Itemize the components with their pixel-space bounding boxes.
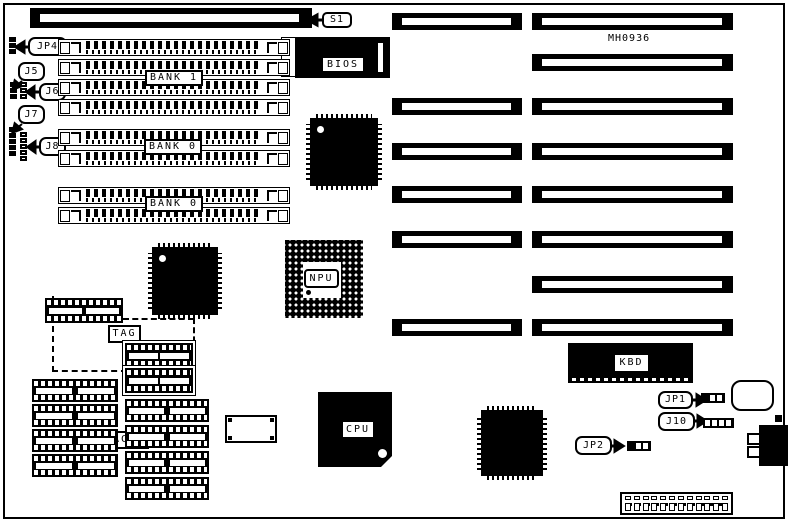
kbd-pins (572, 378, 689, 381)
npu-pin1-dot (306, 290, 311, 295)
jp2-jumper (627, 441, 651, 451)
expansion-slot-left-3 (392, 143, 522, 160)
cache-socket-7-pins-top (127, 453, 207, 458)
callout-s1: S1 (322, 12, 352, 28)
cache-socket-7 (125, 451, 209, 474)
u1-chip-pins-bottom (47, 316, 121, 321)
keyboard-connector-port-2 (747, 446, 761, 458)
chipset-chip-2 (152, 247, 218, 315)
cache-socket-6 (125, 425, 209, 448)
chipset-chip-1-pin1-dot (317, 126, 324, 133)
cache-socket-4-window-right (78, 463, 114, 469)
cache-socket-6-pins-bottom (127, 441, 207, 446)
chipset-chip-3-pins-right (543, 416, 547, 470)
kbd-label-text: KBD (619, 358, 643, 368)
simm-socket-4 (58, 99, 290, 116)
expansion-slot-right-1-stripe (542, 18, 722, 25)
u3-chip-window-left (129, 378, 158, 384)
u3-chip (125, 368, 193, 393)
cache-socket-6-pins-top (127, 427, 207, 432)
power-connector-tab (696, 496, 702, 500)
chipset-chip-1-pins-right (378, 124, 382, 180)
simm-socket-2-latch-right (267, 62, 277, 73)
chipset-chip-3-pins-bottom (487, 476, 537, 480)
power-connector-tab (634, 496, 640, 500)
expansion-slot-right-2-stripe (542, 59, 722, 66)
bank0-upper-label-text: BANK 0 (149, 142, 197, 152)
cache-socket-7-window-left (129, 460, 164, 466)
callout-j5: J5 (18, 62, 45, 81)
chipset-chip-2-pins-left (148, 253, 152, 309)
cache-socket-5-window-left (129, 408, 164, 414)
cache-socket-8-pins-bottom (127, 493, 207, 498)
bios-chip-stripe (378, 43, 383, 72)
npu-label: NPU (304, 269, 339, 288)
tag-socket-outline-bottom (52, 370, 127, 372)
simm-socket-7-latch-right (267, 190, 277, 201)
power-connector-pin (634, 503, 640, 511)
simm-socket-5-latch-left (71, 132, 81, 143)
power-connector-pins (625, 503, 728, 511)
power-connector-pin (704, 503, 710, 511)
simm-socket-5-latch-right (267, 132, 277, 143)
simm-socket-1 (58, 39, 290, 56)
simm-socket-7-tab-right (278, 190, 288, 202)
j8-pin-header-pin-2 (20, 138, 27, 143)
cache-socket-1-window-right (78, 388, 114, 394)
cpu-label-text: CPU (346, 425, 370, 435)
simm-socket-8-contacts-lower (86, 218, 258, 222)
u3-chip-window-right (160, 378, 189, 384)
motherboard-diagram: BIOS MH0936 NPU CPU KBD TAG U1 U2 U3 CAC… (0, 0, 791, 527)
power-connector-tab (722, 496, 728, 500)
j8-pin-header-pin-4 (20, 150, 27, 155)
tag-label: TAG (108, 325, 141, 343)
cpu-pin1-dot (378, 449, 387, 458)
simm-socket-1-tab-left (60, 42, 70, 54)
tag-socket-outline-right (193, 318, 195, 370)
expansion-slot-right-7-stripe (542, 281, 722, 288)
s1-connector (30, 8, 312, 28)
cache-socket-5-window-right (170, 408, 205, 414)
cache-socket-2-pins-bottom (34, 420, 116, 425)
cache-socket-1-pins-bottom (34, 395, 116, 400)
cache-socket-3-window-left (36, 438, 72, 444)
jp2-jumper-pin-3 (643, 443, 648, 449)
expansion-slot-right-5 (532, 186, 733, 203)
j7-pin-header-pin-1 (9, 127, 16, 132)
expansion-slot-right-8 (532, 319, 733, 336)
simm-socket-4-tab-left (60, 102, 70, 114)
chipset-chip-2-pins-right (218, 253, 222, 309)
expansion-slot-left-6-stripe (402, 324, 511, 331)
expansion-slot-right-6 (532, 231, 733, 248)
kbd-label: KBD (614, 354, 649, 372)
u3-chip-pins-top (127, 370, 191, 375)
callout-j7-text: J7 (24, 110, 38, 120)
callout-jp1: JP1 (658, 391, 693, 409)
expansion-slot-right-6-stripe (542, 236, 722, 243)
cache-socket-1-window-left (36, 388, 72, 394)
cache-socket-8-pins-top (127, 479, 207, 484)
jp4-jumper-block-pin-2 (9, 43, 16, 48)
u1-chip (45, 298, 123, 323)
callout-s1-text: S1 (330, 15, 344, 25)
j8-pin-header-pin-1 (20, 132, 27, 137)
tag-label-text: TAG (112, 329, 136, 339)
power-connector-tab (687, 496, 693, 500)
expansion-slot-left-2-stripe (402, 103, 511, 110)
cache-socket-5-pins-top (127, 401, 207, 406)
j6-jumper-block-pin-2 (20, 88, 27, 93)
bios-label: BIOS (321, 56, 365, 73)
simm-socket-6-latch-left (71, 153, 81, 164)
expansion-slot-right-4 (532, 143, 733, 160)
j7-pin-header-pin-5 (9, 151, 16, 156)
simm-socket-3-latch-right (267, 82, 277, 93)
j6-jumper-block-pin-1 (20, 82, 27, 87)
u2-chip-window-left (129, 353, 158, 359)
power-connector-tab (660, 496, 666, 500)
simm-socket-8-tab-right (278, 210, 288, 222)
expansion-slot-right-3-stripe (542, 103, 722, 110)
power-connector-pin (651, 503, 657, 511)
j8-pin-header-pin-3 (20, 144, 27, 149)
j7-pin-header-pin-2 (9, 133, 16, 138)
cache-socket-2-window-right (78, 413, 114, 419)
simm-socket-1-latch-left (71, 42, 81, 53)
jp4-jumper-block-pin-3 (9, 49, 16, 54)
callout-j10-text: J10 (666, 417, 687, 427)
expansion-slot-right-2 (532, 54, 733, 71)
jp2-jumper-pin-2 (636, 443, 641, 449)
j10-jumper-pin-4 (726, 420, 731, 426)
power-connector-pin (713, 503, 719, 511)
power-connector-tab (669, 496, 675, 500)
simm-socket-2-contacts-upper (86, 61, 258, 69)
simm-socket-6-latch-right (267, 153, 277, 164)
chipset-chip-2-pins-bottom (158, 315, 212, 319)
chipset-chip-1-pins-bottom (316, 186, 372, 190)
simm-socket-5-tab-right (278, 132, 288, 144)
npu-label-text: NPU (309, 274, 333, 284)
expansion-slot-left-1 (392, 13, 522, 30)
chipset-chip-1 (310, 118, 378, 186)
power-connector-tab (678, 496, 684, 500)
cache-socket-2-window-left (36, 413, 72, 419)
simm-socket-4-latch-right (267, 102, 277, 113)
power-connector-pin (687, 503, 693, 511)
cache-socket-8-window-right (170, 486, 205, 492)
expansion-slot-left-4-stripe (402, 191, 511, 198)
simm-socket-1-contacts-lower (86, 50, 258, 54)
j5-jumper-block-pin-1 (10, 82, 17, 87)
simm-socket-3-latch-left (71, 82, 81, 93)
expansion-slot-left-3-stripe (402, 148, 511, 155)
expansion-slot-right-1 (532, 13, 733, 30)
j8-pin-header-pin-5 (20, 156, 27, 161)
jp1-jumper (701, 393, 725, 403)
u2-chip-pins-bottom (127, 361, 191, 366)
keyboard-connector (759, 425, 788, 466)
power-connector-pin (643, 503, 649, 511)
cache-socket-2-pins-top (34, 406, 116, 411)
cache-socket-7-window-right (170, 460, 205, 466)
power-connector-pin (678, 503, 684, 511)
u1-chip-pins-top (47, 300, 121, 305)
callout-j10: J10 (658, 412, 695, 431)
simm-socket-8-latch-right (267, 210, 277, 221)
cache-socket-8-window-left (129, 486, 164, 492)
u2-chip (125, 343, 193, 368)
keyboard-connector-pad (775, 415, 782, 422)
j7-pin-header-pin-3 (9, 139, 16, 144)
simm-socket-4-contacts-lower (86, 110, 258, 114)
power-connector-pin (669, 503, 675, 511)
callout-jp2: JP2 (575, 436, 612, 455)
power-connector-tab (625, 496, 631, 500)
cache-socket-1-pins-top (34, 381, 116, 386)
callout-j5-text: J5 (24, 67, 38, 77)
cache-socket-8 (125, 477, 209, 500)
j10-jumper-pin-1 (705, 420, 710, 426)
battery-outline (731, 380, 774, 411)
cache-socket-4-pins-bottom (34, 470, 116, 475)
simm-socket-4-contacts-upper (86, 101, 258, 109)
j7-pin-header-pin-4 (9, 145, 16, 150)
empty-socket (225, 415, 277, 443)
cache-socket-6-window-right (170, 434, 205, 440)
j5-jumper-block-pin-2 (10, 88, 17, 93)
cache-socket-3 (32, 429, 118, 452)
bank0-lower-label-text: BANK 0 (150, 199, 198, 209)
chipset-chip-3 (481, 410, 543, 476)
chipset-chip-1-pins-left (306, 124, 310, 180)
u2-chip-pins-top (127, 345, 191, 350)
cache-socket-3-pins-top (34, 431, 116, 436)
callout-jp2-text: JP2 (583, 441, 604, 451)
expansion-slot-left-5 (392, 231, 522, 248)
simm-socket-3-tab-right (278, 82, 288, 94)
simm-socket-5-tab-left (60, 132, 70, 144)
cpu-label: CPU (342, 421, 374, 438)
power-connector-tab (704, 496, 710, 500)
j10-jumper-pin-2 (712, 420, 717, 426)
cache-socket-7-pins-bottom (127, 467, 207, 472)
cache-socket-5-pins-bottom (127, 415, 207, 420)
simm-socket-6-contacts-lower (86, 161, 258, 165)
chipset-chip-3-pins-left (477, 416, 481, 470)
power-connector-tab (643, 496, 649, 500)
bios-label-text: BIOS (327, 60, 359, 70)
callout-j7: J7 (18, 105, 45, 124)
simm-socket-1-tab-right (278, 42, 288, 54)
simm-socket-2-tab-left (60, 62, 70, 74)
u1-chip-window-left (49, 308, 82, 314)
u1-chip-window-right (86, 308, 119, 314)
simm-socket-4-latch-left (71, 102, 81, 113)
power-connector-pin (696, 503, 702, 511)
chipset-chip-2-pins-top (158, 243, 212, 247)
cache-socket-3-window-right (78, 438, 114, 444)
expansion-slot-right-7 (532, 276, 733, 293)
simm-socket-8-tab-left (60, 210, 70, 222)
j10-jumper-pin-3 (719, 420, 724, 426)
expansion-slot-left-5-stripe (402, 236, 511, 243)
cache-socket-1 (32, 379, 118, 402)
chipset-chip-3-pins-top (487, 406, 537, 410)
s1-connector-stripe (40, 14, 299, 22)
part-number: MH0936 (608, 34, 650, 44)
expansion-slot-left-2 (392, 98, 522, 115)
chipset-chip-1-pins-top (316, 114, 372, 118)
simm-socket-7-latch-left (71, 190, 81, 201)
expansion-slot-right-4-stripe (542, 148, 722, 155)
cache-socket-5 (125, 399, 209, 422)
bank1-label-text: BANK 1 (150, 73, 198, 83)
cache-socket-4-window-left (36, 463, 72, 469)
simm-socket-2-tab-right (278, 62, 288, 74)
simm-socket-4-tab-right (278, 102, 288, 114)
expansion-slot-left-6 (392, 319, 522, 336)
power-connector-tabs (625, 496, 728, 500)
jp1-jumper-pin-2 (710, 395, 715, 401)
power-connector-tab (713, 496, 719, 500)
power-connector-pin (660, 503, 666, 511)
bank0-upper-label: BANK 0 (144, 139, 202, 155)
simm-socket-7-tab-left (60, 190, 70, 202)
bank1-label: BANK 1 (145, 70, 203, 86)
bank0-lower-label: BANK 0 (145, 196, 203, 212)
simm-socket-5-contacts-upper (86, 131, 258, 139)
expansion-slot-right-5-stripe (542, 191, 722, 198)
simm-socket-6-tab-right (278, 153, 288, 165)
j5-jumper-block-pin-3 (10, 94, 17, 99)
callout-jp1-text: JP1 (665, 395, 686, 405)
chipset-chip-2-pin1-dot (159, 255, 166, 262)
power-connector-pin (722, 503, 728, 511)
cache-socket-2 (32, 404, 118, 427)
simm-socket-1-contacts-upper (86, 41, 258, 49)
expansion-slot-right-8-stripe (542, 324, 722, 331)
power-connector-pin (625, 503, 631, 511)
simm-socket-3-contacts-lower (86, 90, 258, 94)
simm-socket-6-tab-left (60, 153, 70, 165)
j6-jumper-block-pin-3 (20, 94, 27, 99)
cache-socket-3-pins-bottom (34, 445, 116, 450)
keyboard-connector-port-1 (747, 433, 761, 445)
simm-socket-1-latch-right (267, 42, 277, 53)
u3-chip-pins-bottom (127, 386, 191, 391)
simm-socket-3-tab-left (60, 82, 70, 94)
expansion-slot-right-3 (532, 98, 733, 115)
callout-jp4-text: JP4 (37, 42, 58, 52)
simm-socket-8-latch-left (71, 210, 81, 221)
simm-socket-2-latch-left (71, 62, 81, 73)
power-connector (620, 492, 733, 515)
jp4-jumper-block-pin-1 (9, 37, 16, 42)
cache-socket-4-pins-top (34, 456, 116, 461)
jp1-jumper-pin-3 (717, 395, 722, 401)
expansion-slot-left-4 (392, 186, 522, 203)
cache-socket-6-window-left (129, 434, 164, 440)
j10-jumper (703, 418, 734, 428)
u2-chip-window-right (160, 353, 189, 359)
cache-socket-4 (32, 454, 118, 477)
power-connector-tab (651, 496, 657, 500)
expansion-slot-left-1-stripe (402, 18, 511, 25)
